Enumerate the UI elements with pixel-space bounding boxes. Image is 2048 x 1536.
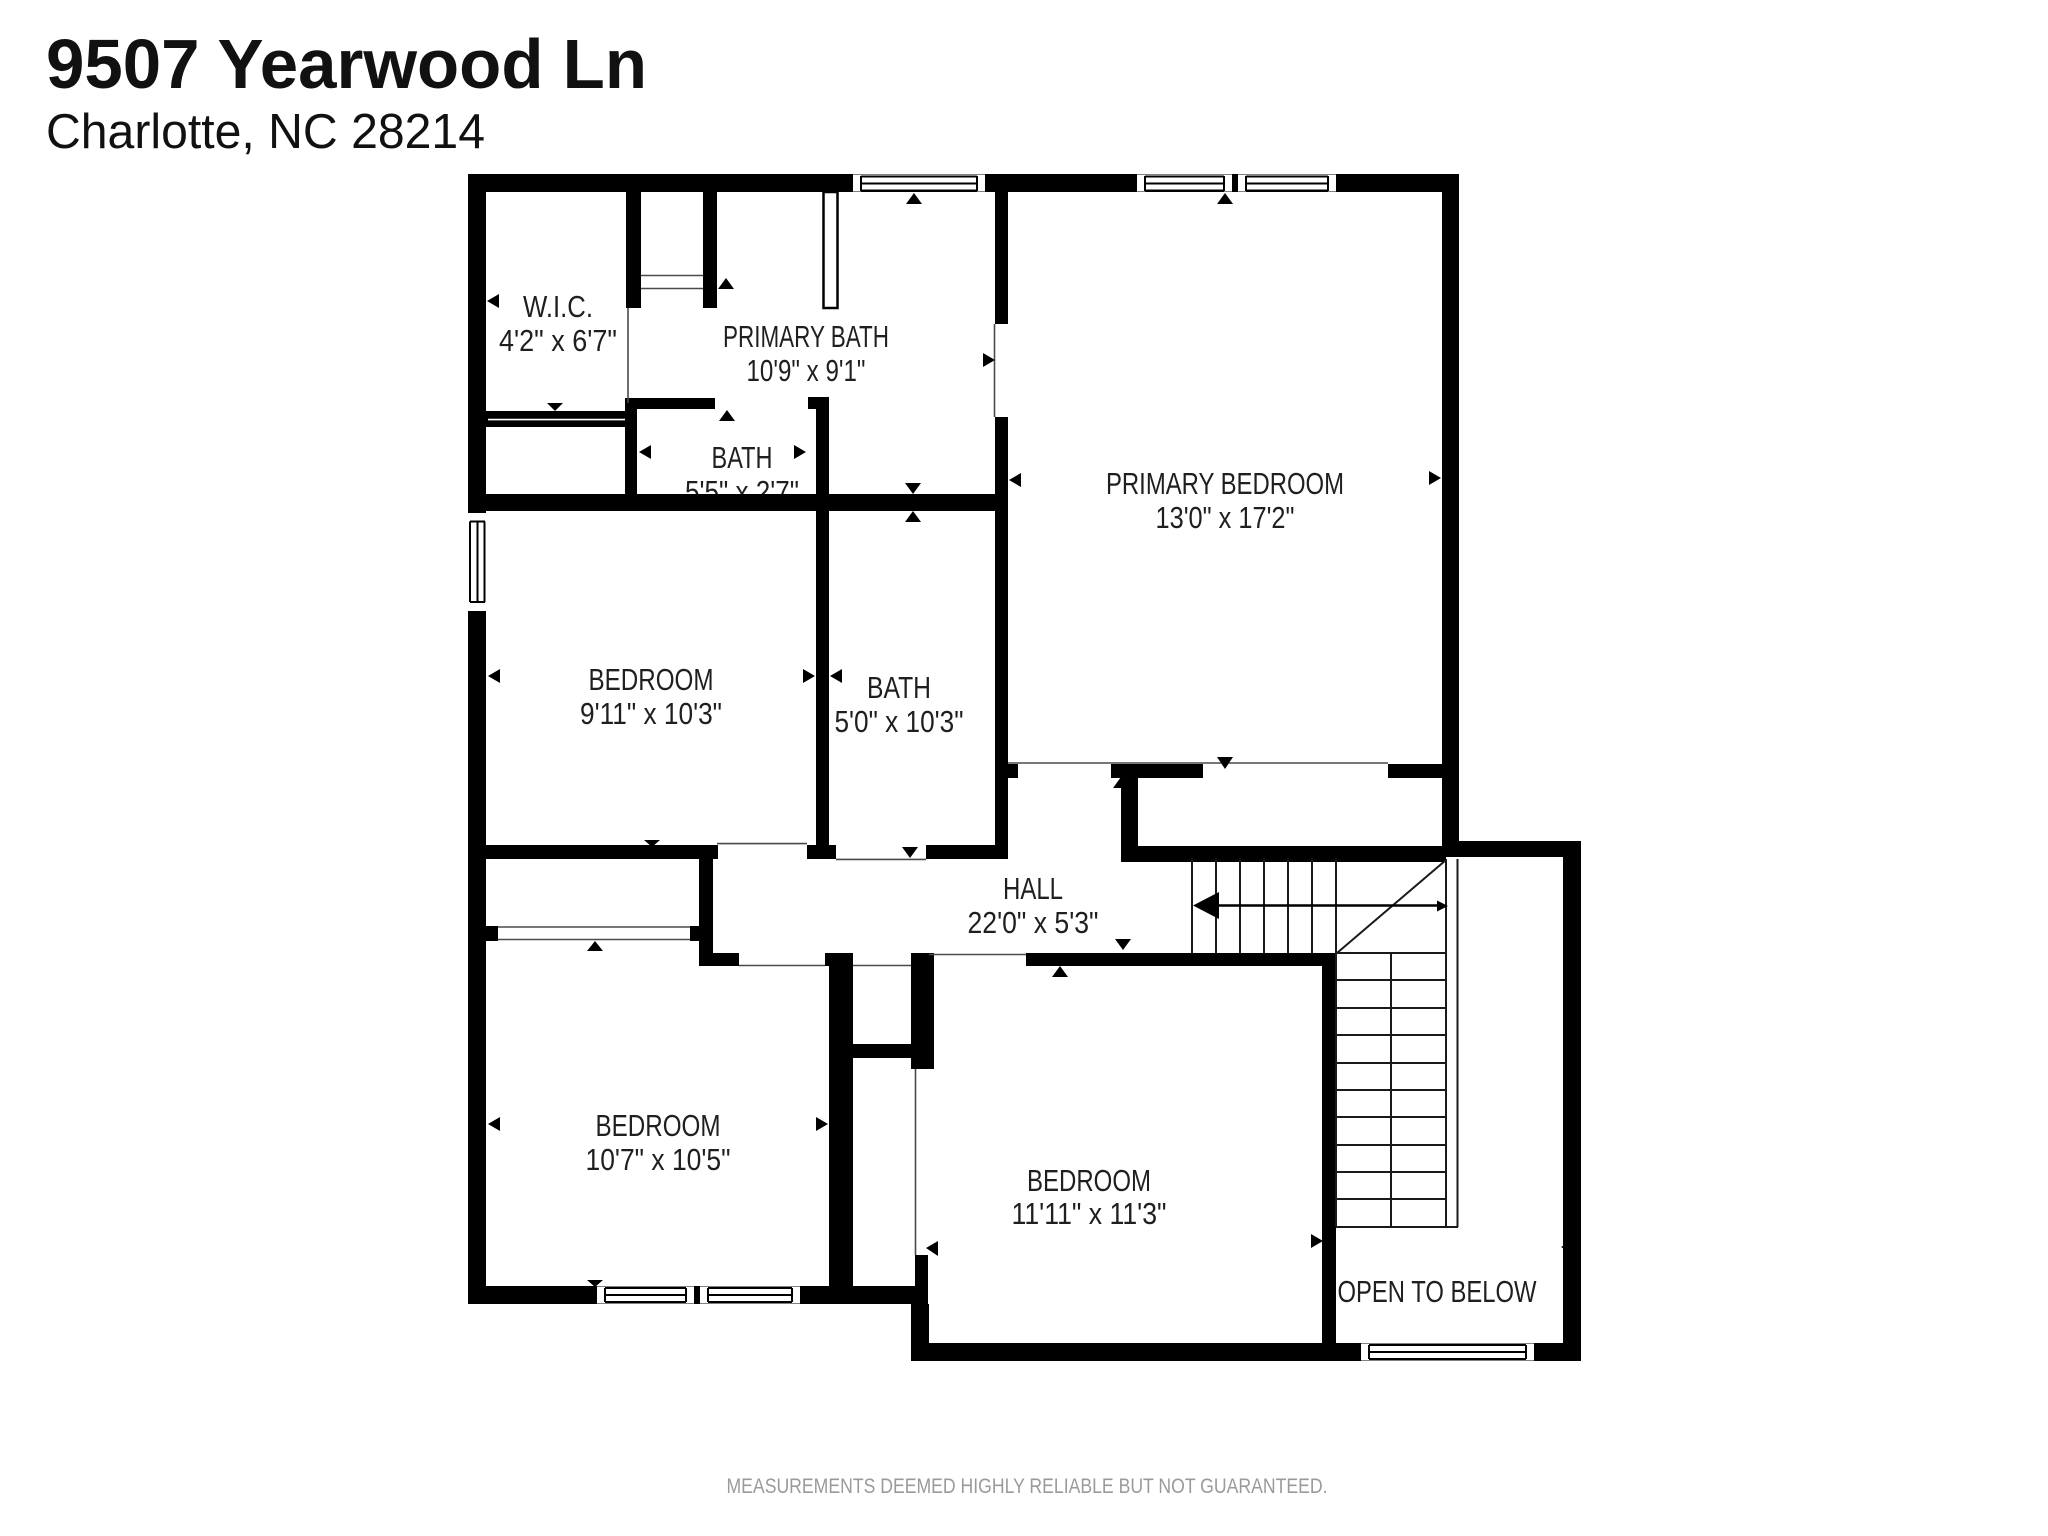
svg-text:11'11" x 11'3": 11'11" x 11'3" — [1012, 1196, 1167, 1231]
svg-text:BEDROOM: BEDROOM — [596, 1108, 721, 1143]
svg-text:BEDROOM: BEDROOM — [1027, 1163, 1151, 1198]
svg-text:13'0" x 17'2": 13'0" x 17'2" — [1156, 500, 1295, 535]
svg-text:BATH: BATH — [712, 440, 773, 475]
svg-text:MEASUREMENTS DEEMED HIGHLY REL: MEASUREMENTS DEEMED HIGHLY RELIABLE BUT … — [727, 1474, 1328, 1498]
svg-text:W.I.C.: W.I.C. — [523, 289, 593, 324]
svg-text:PRIMARY BATH: PRIMARY BATH — [723, 319, 889, 354]
svg-text:PRIMARY BEDROOM: PRIMARY BEDROOM — [1106, 466, 1344, 501]
svg-text:10'9" x 9'1": 10'9" x 9'1" — [747, 353, 866, 388]
svg-text:Charlotte, NC 28214: Charlotte, NC 28214 — [46, 105, 485, 159]
svg-text:22'0" x 5'3": 22'0" x 5'3" — [968, 905, 1099, 940]
svg-text:5'0" x 10'3": 5'0" x 10'3" — [835, 704, 964, 739]
svg-text:BATH: BATH — [867, 670, 931, 705]
svg-text:10'7" x 10'5": 10'7" x 10'5" — [586, 1142, 731, 1177]
svg-text:BEDROOM: BEDROOM — [589, 662, 714, 697]
svg-text:9'11" x 10'3": 9'11" x 10'3" — [580, 696, 722, 731]
svg-text:9507 Yearwood Ln: 9507 Yearwood Ln — [46, 25, 647, 103]
svg-text:HALL: HALL — [1003, 871, 1063, 906]
svg-text:4'2" x 6'7": 4'2" x 6'7" — [499, 323, 617, 358]
svg-text:OPEN TO BELOW: OPEN TO BELOW — [1338, 1274, 1538, 1309]
